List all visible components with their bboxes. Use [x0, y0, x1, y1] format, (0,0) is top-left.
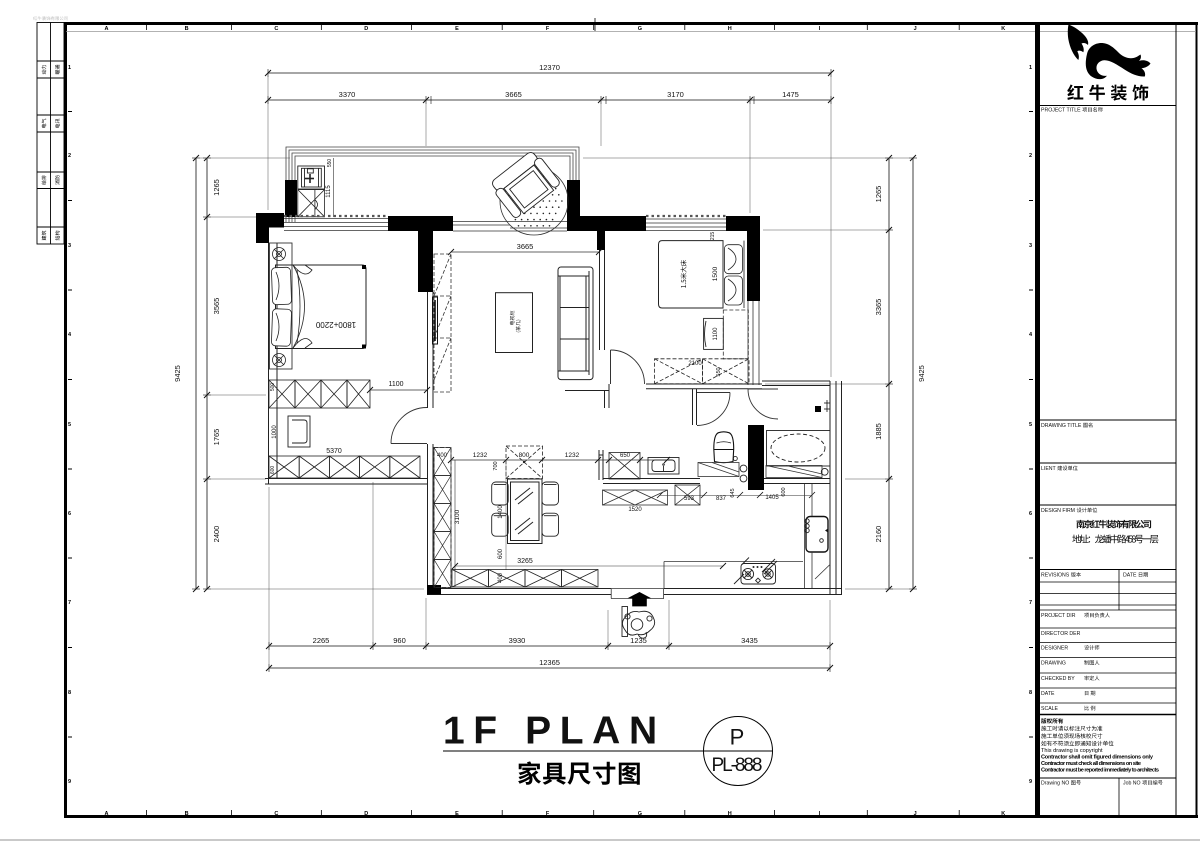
svg-text:2: 2: [1029, 153, 1032, 159]
svg-text:Contractor must check all dime: Contractor must check all dimensions on …: [1041, 761, 1141, 767]
svg-text:650: 650: [620, 453, 631, 459]
svg-text:LIENT: LIENT: [1041, 466, 1057, 472]
svg-text:3370: 3370: [339, 90, 356, 99]
svg-text:600: 600: [270, 466, 276, 475]
svg-text:H: H: [728, 26, 732, 32]
svg-text:C: C: [274, 811, 278, 817]
svg-text:3265: 3265: [517, 558, 533, 565]
svg-text:2160: 2160: [874, 526, 883, 543]
svg-text:K: K: [1001, 26, 1005, 32]
svg-text:1265: 1265: [212, 179, 221, 196]
svg-text:CHECKED BY: CHECKED BY: [1041, 676, 1075, 682]
svg-text:SCALE: SCALE: [1041, 706, 1059, 712]
svg-text:Contractor must be reported im: Contractor must be reported immediately …: [1041, 768, 1159, 774]
svg-text:5: 5: [68, 422, 71, 428]
svg-text:Drawing NO: Drawing NO: [1041, 781, 1069, 787]
svg-text:D: D: [364, 26, 368, 32]
svg-text:3: 3: [68, 243, 71, 249]
svg-text:DRAWING: DRAWING: [1041, 661, 1066, 667]
svg-text:E: E: [455, 811, 459, 817]
svg-text:PL-888: PL-888: [712, 755, 763, 776]
svg-text:1100: 1100: [713, 327, 719, 341]
svg-text:3365: 3365: [874, 299, 883, 316]
svg-text:Job NO: Job NO: [1123, 781, 1141, 787]
svg-text:PROJECT TITLE: PROJECT TITLE: [1041, 108, 1081, 114]
svg-text:J: J: [914, 811, 917, 817]
svg-text:600: 600: [498, 548, 504, 559]
svg-text:12365: 12365: [539, 658, 560, 667]
svg-text:8: 8: [1029, 690, 1032, 696]
svg-text:7: 7: [68, 600, 71, 606]
svg-text:E: E: [455, 26, 459, 32]
svg-text:A: A: [105, 811, 109, 817]
svg-text:3: 3: [1029, 243, 1032, 249]
svg-text:500: 500: [270, 383, 276, 392]
svg-text:B: B: [185, 26, 189, 32]
svg-text:1235: 1235: [630, 636, 647, 645]
svg-text:215: 215: [710, 232, 716, 241]
svg-text:3665: 3665: [505, 90, 522, 99]
svg-text:K: K: [1001, 811, 1005, 817]
svg-text:9425: 9425: [173, 365, 182, 382]
svg-text:9425: 9425: [917, 365, 926, 382]
svg-text:550: 550: [716, 367, 722, 376]
svg-text:A: A: [105, 26, 109, 32]
svg-text:9: 9: [68, 779, 71, 785]
svg-text:1232: 1232: [473, 452, 488, 459]
svg-text:DESIGNER: DESIGNER: [1041, 646, 1068, 652]
svg-text:REVISIONS: REVISIONS: [1041, 573, 1070, 579]
svg-text:3565: 3565: [212, 298, 221, 315]
svg-text:9: 9: [1029, 779, 1032, 785]
svg-text:1885: 1885: [874, 423, 883, 440]
svg-text:2: 2: [68, 153, 71, 159]
svg-text:550: 550: [327, 159, 333, 168]
svg-text:3170: 3170: [667, 90, 684, 99]
svg-text:1500: 1500: [712, 266, 719, 281]
svg-text:2400: 2400: [212, 526, 221, 543]
svg-text:1: 1: [68, 65, 71, 71]
svg-text:H: H: [728, 811, 732, 817]
svg-text:DATE: DATE: [1041, 691, 1055, 697]
svg-text:1405: 1405: [765, 495, 779, 501]
svg-text:12370: 12370: [539, 63, 560, 72]
svg-text:DRAWING TITLE: DRAWING TITLE: [1041, 423, 1082, 429]
svg-text:7: 7: [1029, 600, 1032, 606]
svg-text:800: 800: [519, 452, 530, 459]
svg-text:1000: 1000: [272, 425, 278, 439]
svg-text:2100: 2100: [688, 361, 702, 367]
svg-text:6: 6: [68, 511, 71, 517]
svg-text:3435: 3435: [741, 636, 758, 645]
svg-text:2265: 2265: [313, 636, 330, 645]
svg-text:G: G: [638, 811, 642, 817]
svg-text:DIRECTOR DER: DIRECTOR DER: [1041, 631, 1081, 637]
svg-text:G: G: [638, 26, 642, 32]
svg-text:1265: 1265: [874, 186, 883, 203]
svg-text:1520: 1520: [628, 507, 642, 513]
svg-text:1765: 1765: [212, 429, 221, 446]
svg-text:5370: 5370: [326, 448, 342, 455]
svg-text:D: D: [364, 811, 368, 817]
svg-text:3665: 3665: [517, 242, 534, 251]
svg-text:J: J: [914, 26, 917, 32]
svg-text:5: 5: [1029, 422, 1032, 428]
svg-text:3930: 3930: [509, 636, 526, 645]
svg-text:1100: 1100: [388, 381, 403, 388]
svg-text:P: P: [730, 725, 745, 750]
svg-text:700: 700: [493, 461, 499, 470]
svg-text:DESIGN FIRM: DESIGN FIRM: [1041, 508, 1075, 514]
svg-text:1: 1: [1029, 65, 1032, 71]
svg-text:1400: 1400: [498, 505, 504, 519]
svg-text:1115: 1115: [326, 185, 332, 198]
svg-text:1232: 1232: [565, 452, 580, 459]
svg-text:C: C: [274, 26, 278, 32]
svg-text:This drawing is copyright: This drawing is copyright: [1041, 748, 1103, 754]
svg-text:6: 6: [1029, 511, 1032, 517]
svg-text:8: 8: [68, 690, 71, 696]
svg-text:837: 837: [716, 496, 727, 502]
svg-text:1F PLAN: 1F PLAN: [443, 710, 666, 753]
svg-text:1475: 1475: [782, 90, 799, 99]
svg-text:645: 645: [730, 488, 736, 497]
svg-text:DATE: DATE: [1123, 573, 1137, 579]
svg-text:960: 960: [393, 636, 406, 645]
svg-text:B: B: [185, 811, 189, 817]
svg-text:1800+2200: 1800+2200: [315, 320, 356, 329]
svg-text:PROJECT DIR: PROJECT DIR: [1041, 613, 1076, 619]
svg-text:Contractor shall omit figured: Contractor shall omit figured dimensions…: [1041, 755, 1154, 761]
